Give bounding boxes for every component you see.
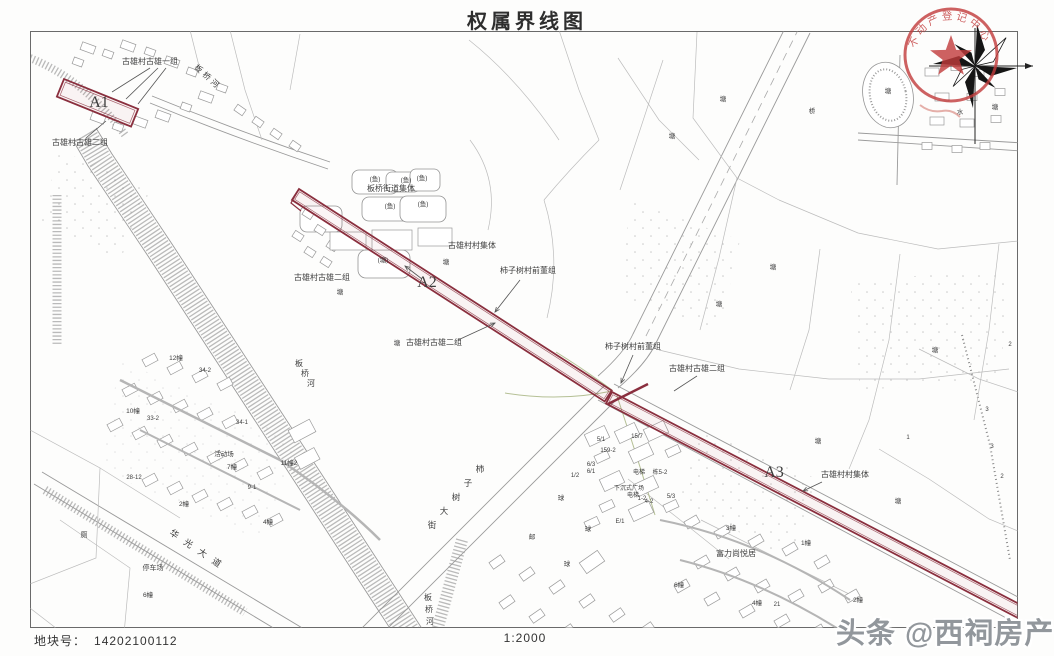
map-label: 古雄村古雄一组 bbox=[122, 56, 178, 66]
map-canvas: 古雄村古雄一组A1古雄村古雄二组板桥河板桥街道集体(鱼)(鱼)(鱼)(鱼)(鱼)… bbox=[0, 0, 1054, 656]
map-label: 34-2 bbox=[199, 368, 212, 374]
map-label: 古雄村村集体 bbox=[448, 240, 496, 250]
map-label: 塘 bbox=[885, 86, 892, 95]
map-label: 华光大道 bbox=[168, 527, 231, 574]
map-label: 塘 bbox=[337, 287, 344, 296]
map-label: 富力尚悦居 bbox=[716, 548, 756, 558]
map-label: 塘 bbox=[815, 436, 822, 445]
map-label: 桥 bbox=[809, 106, 816, 115]
map-label: 停车场 bbox=[143, 563, 164, 572]
map-label: 塘 bbox=[932, 345, 939, 354]
map-label: 21 bbox=[774, 602, 781, 608]
map-label: E/1 bbox=[615, 519, 625, 525]
map-label: 159-2 bbox=[600, 448, 616, 454]
map-label: 4-2 bbox=[645, 499, 654, 505]
map-label: 7幢 bbox=[227, 462, 238, 471]
map-label: 邮 bbox=[529, 532, 536, 541]
map-label: 塘 bbox=[895, 496, 902, 505]
plot-number-label: 地块号： bbox=[34, 634, 86, 648]
map-label: 6幢 bbox=[674, 580, 685, 589]
buildings-bottom-center bbox=[489, 550, 655, 638]
map-label: 板桥河 bbox=[424, 592, 434, 626]
map-label: 2 bbox=[1030, 53, 1034, 59]
plot-number-value: 14202100112 bbox=[94, 634, 178, 648]
map-label: 3 bbox=[985, 407, 989, 413]
map-label: 古雄村古雄二组 bbox=[669, 363, 725, 373]
document-page: 权属界线图 bbox=[0, 0, 1054, 656]
map-label: 厕 bbox=[81, 531, 88, 539]
map-label: 4幢 bbox=[263, 517, 274, 526]
map-label: 6幢 bbox=[143, 590, 154, 599]
field-textures bbox=[40, 150, 1010, 560]
map-label: 塘 bbox=[720, 94, 727, 103]
map-label: 1幢 bbox=[801, 538, 812, 547]
map-label: 球 bbox=[585, 524, 592, 533]
map-scale: 1:2000 bbox=[460, 631, 590, 645]
map-label: A2 bbox=[417, 274, 437, 291]
map-label: 9-1 bbox=[248, 485, 257, 491]
map-label: 28-12 bbox=[126, 475, 142, 481]
map-label: 柿子树大街 bbox=[428, 464, 485, 530]
map-label: 塘 bbox=[443, 257, 450, 266]
map-label: 塘 bbox=[669, 131, 676, 140]
map-label: 古雄村古雄二组 bbox=[294, 272, 350, 282]
road-shizishu-street bbox=[341, 385, 618, 656]
map-label: (鱼) bbox=[370, 174, 381, 183]
map-label: 塘 bbox=[394, 338, 401, 347]
map-label: 34-1 bbox=[236, 420, 249, 426]
map-label: 板桥河 bbox=[192, 62, 223, 92]
map-label: 柿子树村前董组 bbox=[605, 341, 661, 351]
map-label: 2 bbox=[1008, 342, 1012, 348]
map-label: 球 bbox=[564, 559, 571, 568]
map-label: 塘 bbox=[992, 102, 999, 111]
map-label: 33-2 bbox=[147, 416, 160, 422]
map-label: 6/3 bbox=[587, 462, 596, 468]
river-band-secondary bbox=[430, 540, 462, 656]
map-label: 11幢2 bbox=[281, 458, 298, 467]
map-label: 塘 bbox=[770, 262, 777, 271]
map-label: 下沉式广场 bbox=[614, 484, 644, 492]
map-label: (鱼) bbox=[417, 173, 428, 182]
map-label: 2 bbox=[1000, 474, 1004, 480]
map-label: A3 bbox=[764, 464, 784, 481]
map-label: (塘) bbox=[378, 255, 389, 264]
map-label: 板桥河 bbox=[295, 358, 315, 388]
map-label: 栋5-2 bbox=[653, 468, 668, 476]
map-label: 15/7 bbox=[631, 434, 643, 440]
map-label: 3幢 bbox=[726, 523, 737, 532]
map-label: 建 bbox=[1035, 502, 1042, 511]
map-label: (鱼) bbox=[418, 199, 429, 208]
map-label: (鱼) bbox=[385, 201, 396, 210]
map-label: 古雄村村集体 bbox=[821, 469, 869, 479]
map-label: 10幢 bbox=[126, 406, 140, 415]
map-label: 6/1 bbox=[587, 469, 596, 475]
map-label: 5/3 bbox=[667, 494, 676, 500]
plot-number: 地块号：14202100112 bbox=[34, 632, 178, 649]
map-label: (鱼) bbox=[401, 175, 412, 184]
map-content: 古雄村古雄一组A1古雄村古雄二组板桥河板桥街道集体(鱼)(鱼)(鱼)(鱼)(鱼)… bbox=[30, 22, 1054, 656]
map-label: 4幢 bbox=[752, 598, 763, 607]
watermark: 头条 @西祠房产 bbox=[836, 610, 1054, 652]
map-label: 2幢 bbox=[179, 499, 190, 508]
map-label: 5/1 bbox=[597, 437, 606, 443]
map-label: 1 bbox=[906, 435, 910, 441]
map-label: 板桥街道集体 bbox=[367, 183, 415, 193]
map-label: A1 bbox=[89, 94, 109, 111]
buildings-fuli-estate bbox=[660, 515, 860, 648]
map-label: 12幢 bbox=[169, 353, 183, 362]
map-label: 古雄村古雄二组 bbox=[406, 337, 462, 347]
map-label: 1/2 bbox=[571, 473, 580, 479]
map-label: 古雄村古雄二组 bbox=[52, 137, 108, 147]
map-label: 柿子树村前董组 bbox=[500, 265, 556, 275]
map-label: 球 bbox=[558, 493, 565, 502]
map-label: 电梯 bbox=[633, 468, 645, 476]
map-label: 3 bbox=[990, 444, 994, 450]
map-label: 塘 bbox=[716, 299, 723, 308]
map-label: 活动场 bbox=[214, 449, 234, 458]
map-label: 2幢 bbox=[853, 595, 864, 604]
